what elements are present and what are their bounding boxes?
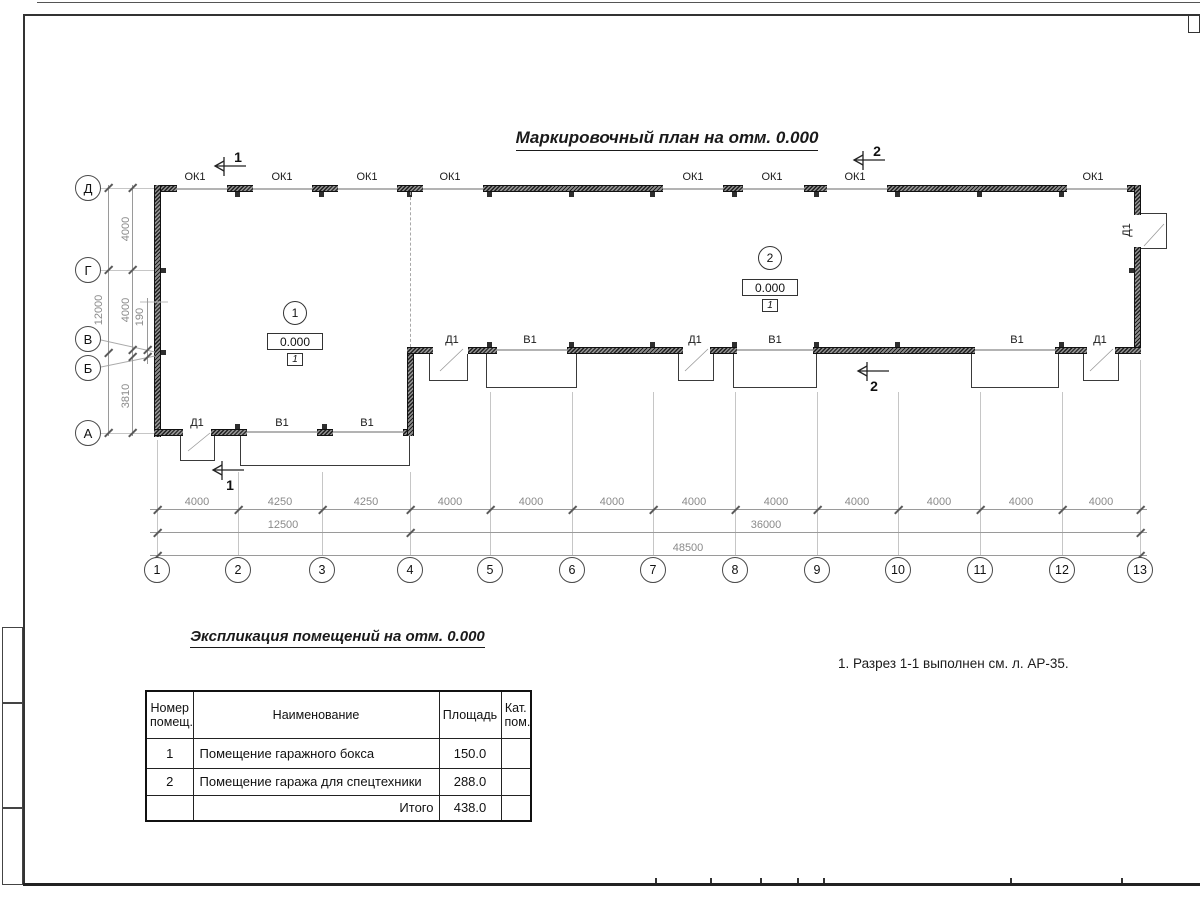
room-name-cell: Помещение гаражного бокса [193,738,439,768]
room-elevation-box: 0.000 [267,333,323,350]
gate-mark-label: В1 [347,417,387,429]
frame-top [23,14,1200,16]
pier-tick [650,342,655,347]
wall-segment [804,185,827,192]
margin-cell [2,703,23,808]
pier-tick [161,268,166,273]
column-bubble: 7 [640,557,666,583]
dimension-line [108,185,109,436]
gate-ramp [240,436,410,466]
wall-segment [317,429,333,436]
col-header-room-number: Номер помещ. [146,691,193,738]
door-mark-label: Д1 [1121,215,1133,245]
pier-tick [732,342,737,347]
wall-segment [813,347,975,354]
wall-segment [1115,347,1141,354]
pier-tick [1129,268,1134,273]
section-mark-label: 2 [866,378,882,394]
wall-segment [211,429,247,436]
column-bubble: 8 [722,557,748,583]
dim-label: 4250 [346,496,386,508]
frame-bottom [23,883,1200,886]
door-vestibule [1141,213,1167,249]
gate-mark-label: В1 [510,334,550,346]
room-floor-type-box: 1 [287,353,303,366]
window-opening [743,188,804,190]
axis-bubble: Б [75,355,101,381]
total-label-cell: Итого [193,795,439,821]
pier-tick [1059,192,1064,197]
column-bubble: 12 [1049,557,1075,583]
dim-label: 4000 [1081,496,1121,508]
titleblock-tick [710,878,712,883]
dim-label: 4000 [120,209,132,249]
door-mark-label: Д1 [177,417,217,429]
column-bubble: 13 [1127,557,1153,583]
dimension-line [132,185,133,436]
window-mark-label: ОК1 [430,171,470,183]
column-bubble: 6 [559,557,585,583]
dim-label: 4000 [1001,496,1041,508]
pier-tick [569,192,574,197]
dim-label: 4000 [120,290,132,330]
titleblock-tick [1121,878,1123,883]
col-header-category: Кат. пом. [501,691,531,738]
door-porch [180,436,215,461]
room-area-cell: 150.0 [439,738,501,768]
pier-tick [650,192,655,197]
table-row: 1 Помещение гаражного бокса 150.0 [146,738,531,768]
wall-segment [312,185,338,192]
pier-tick [977,192,982,197]
room-number-bubble: 1 [283,301,307,325]
wall-segment [1055,347,1087,354]
door-porch [1083,354,1119,381]
wall-segment [887,185,1067,192]
plan-title-text: Маркировочный план на отм. 0.000 [516,128,819,151]
room-cat-cell [501,768,531,795]
empty-cell [501,795,531,821]
dimension-line [150,555,1147,556]
extension-line [322,472,323,556]
section-mark-label: 2 [869,143,885,159]
window-mark-label: ОК1 [752,171,792,183]
gate-ramp [733,354,817,388]
dim-label: 4000 [756,496,796,508]
dashed-partition-line [410,192,411,347]
room-floor-type-box: 1 [762,299,778,312]
axis-bubble: А [75,420,101,446]
pier-tick [732,192,737,197]
extension-line [157,440,158,556]
column-bubble: 4 [397,557,423,583]
axis-bubble: В [75,326,101,352]
wall-right [1134,247,1141,354]
column-bubble: 1 [144,557,170,583]
pier-tick [814,342,819,347]
window-mark-label: ОК1 [673,171,713,183]
pier-tick [319,192,324,197]
dim-label: 36000 [736,519,796,531]
room-area-cell: 288.0 [439,768,501,795]
axis-bubble: Д [75,175,101,201]
dimension-line [150,509,1147,510]
room-number-cell: 2 [146,768,193,795]
wall-right [1134,185,1141,215]
window-opening [663,188,723,190]
dim-label: 4000 [919,496,959,508]
column-bubble: 5 [477,557,503,583]
total-value-cell: 438.0 [439,795,501,821]
dim-label: 4000 [837,496,877,508]
wall-segment [567,347,683,354]
wall-segment [397,185,423,192]
gate-opening [247,431,317,433]
gate-opening [497,349,567,351]
column-bubble: 11 [967,557,993,583]
window-mark-label: ОК1 [175,171,215,183]
pier-tick [235,424,240,429]
gate-opening [737,349,813,351]
pier-tick [161,350,166,355]
table-total-row: Итого 438.0 [146,795,531,821]
frame-left [23,14,25,885]
dim-label: 190 [134,302,146,332]
table-title-text: Экспликация помещений на отм. 0.000 [190,628,485,648]
gate-ramp [486,354,577,388]
window-opening [1067,188,1127,190]
column-bubble: 9 [804,557,830,583]
wall-segment [407,347,433,354]
pier-tick [569,342,574,347]
door-mark-label: Д1 [1080,334,1120,346]
dim-label: 4250 [260,496,300,508]
extension-line [410,472,411,556]
wall-segment [227,185,253,192]
gate-opening [333,431,403,433]
plan-title: Маркировочный план на отм. 0.000 [467,128,867,151]
gate-mark-label: В1 [262,417,302,429]
pier-tick [814,192,819,197]
drawing-sheet: Маркировочный план на отм. 0.000 [0,0,1200,900]
titleblock-tick [797,878,799,883]
window-mark-label: ОК1 [1073,171,1113,183]
gate-mark-label: В1 [997,334,1037,346]
window-opening [423,188,483,190]
titleblock-tick [1010,878,1012,883]
explication-table: Номер помещ. Наименование Площадь Кат. п… [145,690,532,822]
empty-cell [146,795,193,821]
window-opening [253,188,312,190]
wall-gridline4 [407,347,414,436]
drawing-note: 1. Разрез 1-1 выполнен см. л. АР-35. [838,656,1069,671]
frame-top-outer [37,2,1200,3]
dim-label: 4000 [177,496,217,508]
frame-corner-box [1188,14,1200,33]
wall-segment [710,347,737,354]
wall-left [154,185,161,437]
table-row: 2 Помещение гаража для спецтехники 288.0 [146,768,531,795]
window-mark-label: ОК1 [347,171,387,183]
door-mark-label: Д1 [675,334,715,346]
window-mark-label: ОК1 [262,171,302,183]
gate-ramp [971,354,1059,388]
dim-label: 3810 [120,376,132,416]
wall-segment [483,185,663,192]
col-header-name: Наименование [193,691,439,738]
dimension-line [150,532,1147,533]
room-cat-cell [501,738,531,768]
room-name-cell: Помещение гаража для спецтехники [193,768,439,795]
pier-tick [487,192,492,197]
window-opening [177,188,227,190]
pier-tick [1059,342,1064,347]
section-mark-label: 1 [222,477,238,493]
section-mark-label: 1 [230,149,246,165]
axis-bubble: Г [75,257,101,283]
window-mark-label: ОК1 [835,171,875,183]
margin-cell [2,627,23,703]
column-bubble: 3 [309,557,335,583]
pier-tick [322,424,327,429]
extension-line [238,472,239,556]
table-title: Экспликация помещений на отм. 0.000 [145,628,530,648]
pier-tick [487,342,492,347]
titleblock-tick [655,878,657,883]
column-bubble: 10 [885,557,911,583]
pier-tick [895,192,900,197]
titleblock-tick [760,878,762,883]
dim-label: 4000 [430,496,470,508]
door-mark-label: Д1 [432,334,472,346]
wall-segment [723,185,743,192]
room-elevation-box: 0.000 [742,279,798,296]
gate-opening [975,349,1055,351]
room-number-cell: 1 [146,738,193,768]
room-number-bubble: 2 [758,246,782,270]
wall-segment [468,347,497,354]
extension-line [1140,360,1141,556]
pier-tick [235,192,240,197]
dim-label: 4000 [592,496,632,508]
dim-label: 4000 [674,496,714,508]
window-opening [827,188,887,190]
dim-label: 12500 [253,519,313,531]
wall-segment [154,429,183,436]
col-header-area: Площадь [439,691,501,738]
column-bubble: 2 [225,557,251,583]
window-opening [338,188,397,190]
door-porch [678,354,714,381]
margin-cell [2,808,23,885]
gate-mark-label: В1 [755,334,795,346]
dim-label: 48500 [658,542,718,554]
door-porch [429,354,468,381]
dim-label: 4000 [511,496,551,508]
pier-tick [895,342,900,347]
titleblock-tick [823,878,825,883]
